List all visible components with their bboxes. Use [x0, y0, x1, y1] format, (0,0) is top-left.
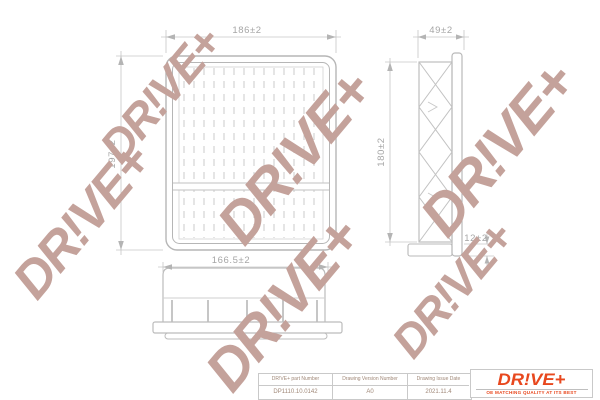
- dim-left-height-lines: [116, 51, 163, 255]
- front-view: [153, 268, 342, 339]
- side-view: [408, 53, 462, 256]
- side-panel-plate: [452, 53, 462, 256]
- brand-logo: DR!VE+ OE MATCHING QUALITY AT ITS BEST: [470, 369, 593, 398]
- side-pleat-zigzag-a: [419, 62, 452, 242]
- issue-date-value: 2021.11.4: [408, 386, 469, 399]
- part-number-header: DR!VE+ part Number: [259, 374, 333, 386]
- dim-label-middle-height: 180±2: [376, 137, 387, 166]
- side-pleat-zigzag-b: [419, 62, 452, 242]
- top-view-outer-outline: [166, 56, 336, 250]
- dim-label-top-width: 186±2: [232, 25, 261, 36]
- dim-label-left-height: 197±2: [107, 139, 118, 168]
- title-block: DR!VE+ part Number Drawing Version Numbe…: [258, 373, 472, 400]
- technical-drawing: 186±2 49±2 197±2 180±2 12±2 166.5±2: [0, 0, 600, 400]
- version-value: A0: [333, 386, 408, 399]
- issue-date-header: Drawing Issue Date: [408, 374, 469, 386]
- dim-label-front-width: 166.5±2: [212, 255, 250, 266]
- dim-label-lip: 12±2: [464, 233, 487, 244]
- dim-middle-height-lines: [385, 58, 417, 246]
- dim-label-side-width: 49±2: [429, 25, 452, 36]
- side-bottom-lip: [408, 244, 452, 256]
- front-flange: [153, 322, 342, 333]
- filter-media-border: [179, 67, 323, 239]
- drawing-sheet: 186±2 49±2 197±2 180±2 12±2 166.5±2 DR!V…: [0, 0, 600, 400]
- top-view: [166, 56, 336, 250]
- brand-wordmark: DR!VE+: [498, 371, 566, 388]
- side-pleat-chevrons: [428, 102, 437, 203]
- front-pins: [172, 300, 317, 322]
- side-media-block: [419, 62, 452, 242]
- part-number-value: DP1110.10.0142: [259, 386, 333, 399]
- pleat-dashes: [184, 68, 314, 238]
- version-header: Drawing Version Number: [333, 374, 408, 386]
- brand-tagline: OE MATCHING QUALITY AT ITS BEST: [486, 391, 576, 396]
- top-view-inner-frame: [173, 63, 330, 244]
- front-seal: [165, 333, 327, 339]
- front-body-outline: [163, 268, 325, 322]
- center-support-band: [173, 183, 329, 191]
